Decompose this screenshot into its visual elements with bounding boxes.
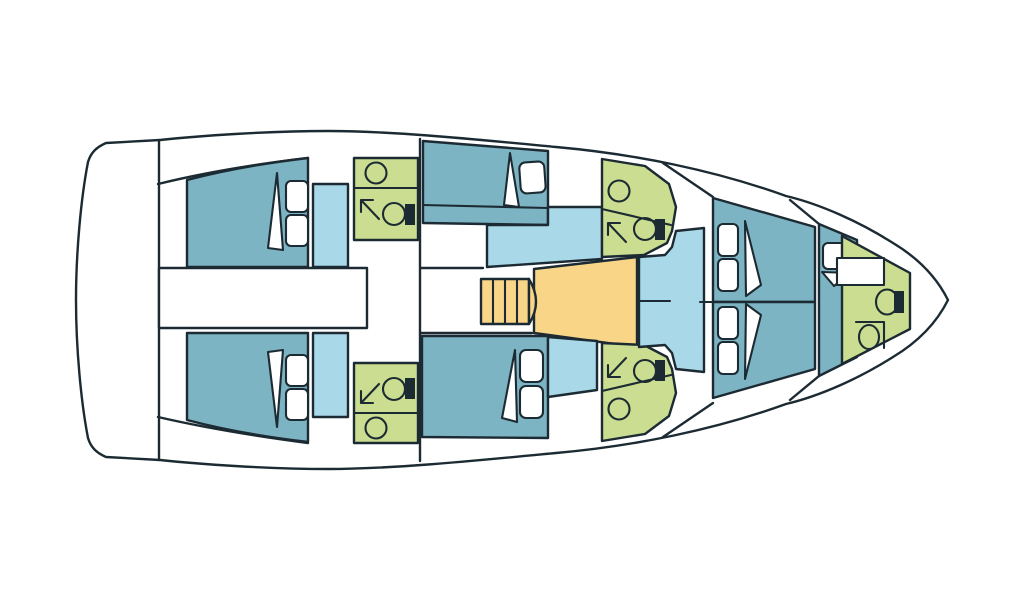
pillow-icon	[286, 215, 308, 246]
aft-walkway-starboard	[313, 333, 348, 417]
pillow-icon	[718, 224, 738, 256]
pillow-icon	[718, 342, 738, 374]
yacht-layout-diagram	[0, 0, 1024, 600]
aft-cabin-starboard	[187, 333, 308, 442]
pillow-icon	[718, 307, 738, 339]
galley-area	[534, 257, 637, 347]
toilet-tank	[655, 219, 665, 240]
pillow-icon	[286, 181, 308, 212]
deck-plan-svg	[0, 0, 1024, 600]
aft-head-port	[354, 158, 418, 240]
pillow-icon	[286, 389, 308, 420]
aft-head-starboard	[354, 363, 418, 443]
walkway-mid-starboard	[548, 337, 597, 397]
shower-door	[837, 258, 884, 285]
pillow-icon	[520, 350, 543, 382]
companionway-stairs	[481, 279, 536, 324]
pillow-icon	[718, 259, 738, 291]
pillow-icon	[520, 386, 543, 418]
toilet-tank	[894, 291, 904, 313]
pillow-icon	[519, 161, 546, 194]
aft-walkway-port	[313, 184, 348, 267]
toilet-tank	[405, 378, 415, 399]
pillow-icon	[286, 355, 308, 386]
engine-compartment	[159, 268, 367, 328]
midship-berth-starboard	[422, 336, 548, 438]
toilet-tank	[655, 360, 665, 381]
midship-berth-port	[423, 141, 548, 225]
toilet-tank	[405, 204, 415, 225]
